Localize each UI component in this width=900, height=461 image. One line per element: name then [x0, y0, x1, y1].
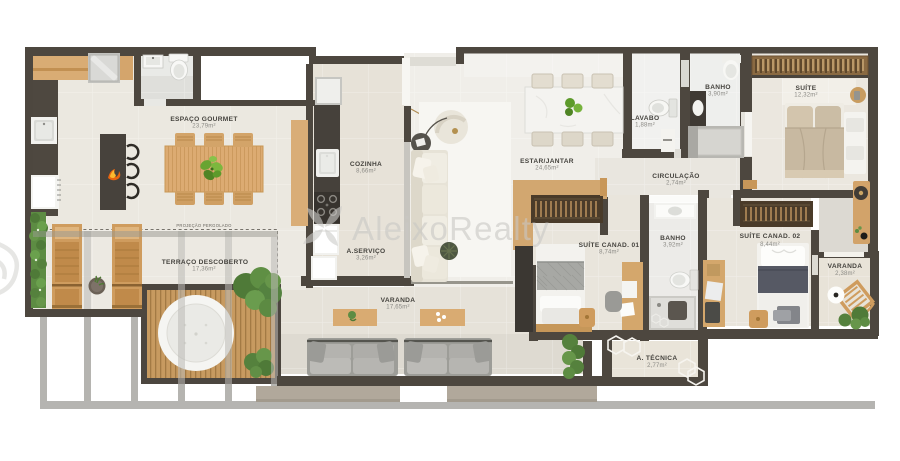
svg-text:A.SERVIÇO: A.SERVIÇO: [346, 248, 385, 255]
svg-text:TERRAÇO DESCOBERTO: TERRAÇO DESCOBERTO: [162, 259, 249, 266]
svg-text:8,74m²: 8,74m²: [599, 250, 619, 256]
svg-text:VARANDA: VARANDA: [828, 263, 863, 270]
svg-text:A. TÉCNICA: A. TÉCNICA: [637, 353, 678, 362]
svg-text:17,65m²: 17,65m²: [386, 305, 409, 311]
svg-text:CIRCULAÇÃO: CIRCULAÇÃO: [652, 171, 700, 180]
svg-text:24,65m²: 24,65m²: [535, 166, 558, 172]
svg-text:2,38m²: 2,38m²: [835, 271, 855, 277]
svg-text:SUÍTE CANAD. 02: SUÍTE CANAD. 02: [740, 231, 801, 240]
svg-text:23,79m²: 23,79m²: [192, 124, 215, 130]
svg-text:12,32m²: 12,32m²: [794, 93, 817, 99]
svg-text:ESPAÇO GOURMET: ESPAÇO GOURMET: [170, 116, 237, 123]
svg-text:AleixoRealty: AleixoRealty: [352, 210, 550, 247]
svg-text:3,26m²: 3,26m²: [356, 256, 376, 262]
svg-text:17,36m²: 17,36m²: [192, 267, 215, 273]
svg-text:2,74m²: 2,74m²: [666, 181, 686, 187]
svg-text:PROJEÇÃO PERGOLADO: PROJEÇÃO PERGOLADO: [176, 223, 232, 228]
svg-text:2,77m²: 2,77m²: [647, 363, 667, 369]
svg-text:VARANDA: VARANDA: [381, 297, 416, 304]
svg-text:SUÍTE: SUÍTE: [795, 83, 816, 92]
svg-text:LAVABO: LAVABO: [631, 115, 660, 122]
svg-text:3,90m²: 3,90m²: [708, 92, 728, 98]
svg-text:BANHO: BANHO: [705, 84, 731, 91]
svg-text:BANHO: BANHO: [660, 235, 686, 242]
svg-text:SUÍTE CANAD. 01: SUÍTE CANAD. 01: [579, 240, 640, 249]
svg-text:8,66m²: 8,66m²: [356, 169, 376, 175]
svg-text:8,44m²: 8,44m²: [760, 242, 780, 248]
svg-text:3,92m²: 3,92m²: [663, 243, 683, 249]
svg-text:ESTAR/JANTAR: ESTAR/JANTAR: [520, 158, 574, 165]
svg-text:COZINHA: COZINHA: [350, 161, 382, 168]
svg-text:1,88m²: 1,88m²: [635, 123, 655, 129]
